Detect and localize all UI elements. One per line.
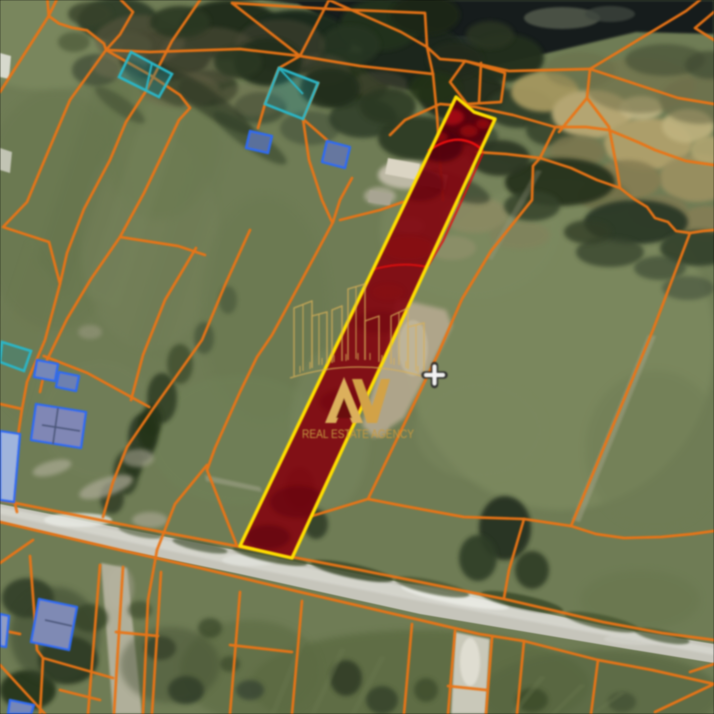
svg-text:REAL ESTATE AGENCY: REAL ESTATE AGENCY (302, 429, 414, 441)
